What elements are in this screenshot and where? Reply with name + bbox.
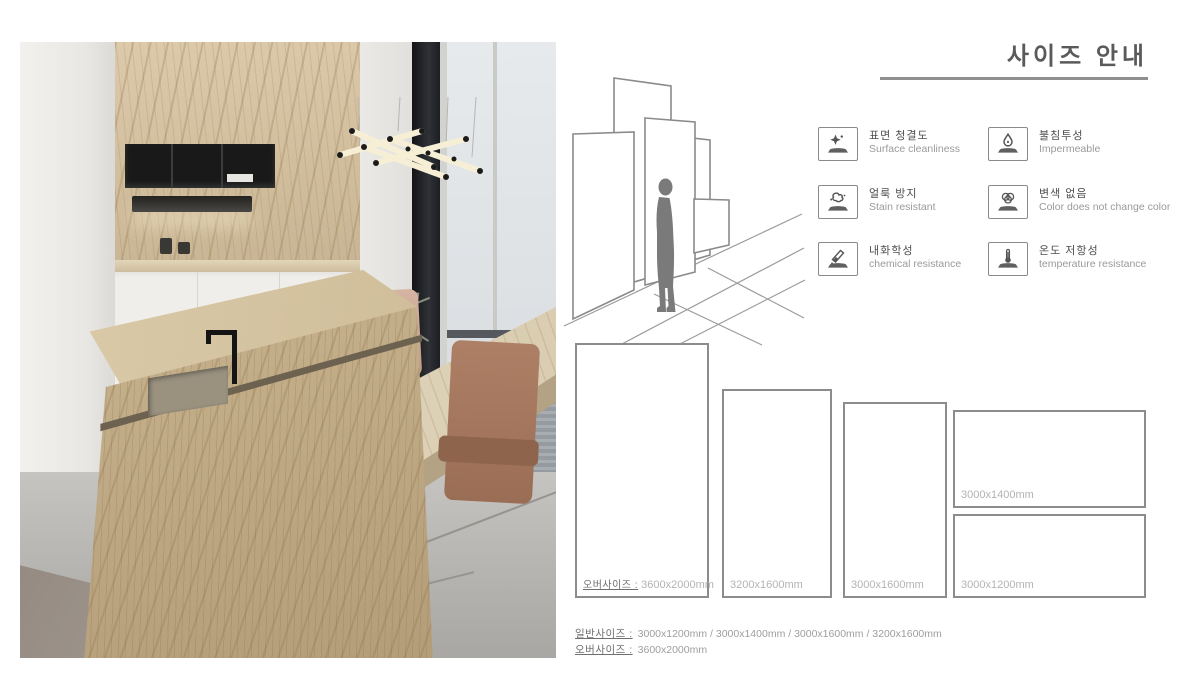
stain-splash-icon xyxy=(818,185,858,219)
slab-size-label: 오버사이즈 : 3600x2000mm xyxy=(583,576,714,591)
size-summary: 일반사이즈 :3000x1200mm / 3000x1400mm / 3000x… xyxy=(575,626,942,658)
feature-en-label: Surface cleanliness xyxy=(869,143,960,156)
feature-temperature-resistance: 온도 저항성 temperature resistance xyxy=(988,242,1146,276)
water-drop-icon xyxy=(988,127,1028,161)
feature-chemical-resistance: 내화학성 chemical resistance xyxy=(818,242,961,276)
slab-size-box-3200x1600: 3200x1600mm xyxy=(722,389,832,598)
color-circles-icon xyxy=(988,185,1028,219)
cooker-hood xyxy=(132,196,252,212)
feature-stain-resistant: 얼룩 방지 Stain resistant xyxy=(818,185,936,219)
feature-en-label: chemical resistance xyxy=(869,258,961,271)
chemical-tube-icon xyxy=(818,242,858,276)
feature-kr-label: 온도 저항성 xyxy=(1039,244,1146,258)
title-underline xyxy=(880,77,1148,80)
kitchen-photo xyxy=(20,42,556,658)
slab-scale-illustration xyxy=(558,56,808,346)
dining-chair xyxy=(444,340,540,504)
counter-items xyxy=(160,232,220,254)
summary-standard-sizes: 일반사이즈 :3000x1200mm / 3000x1400mm / 3000x… xyxy=(575,626,942,642)
feature-kr-label: 변색 없음 xyxy=(1039,187,1170,201)
shelf-divider xyxy=(221,144,223,188)
thermometer-icon xyxy=(988,242,1028,276)
black-faucet xyxy=(232,330,237,384)
black-faucet-spout xyxy=(206,330,237,335)
feature-impermeable: 불침투성 Impermeable xyxy=(988,127,1100,161)
summary-oversize: 오버사이즈 :3600x2000mm xyxy=(575,642,942,658)
feature-kr-label: 불침투성 xyxy=(1039,129,1100,143)
slab-size-label: 3200x1600mm xyxy=(730,579,803,591)
slab-size-box-3600x2000: 오버사이즈 : 3600x2000mm xyxy=(575,343,709,598)
feature-en-label: temperature resistance xyxy=(1039,258,1146,271)
marble-countertop xyxy=(115,260,360,272)
feature-en-label: Color does not change color xyxy=(1039,201,1170,214)
shelf-books xyxy=(227,174,253,182)
feature-en-label: Stain resistant xyxy=(869,201,936,214)
feature-no-discoloration: 변색 없음 Color does not change color xyxy=(988,185,1170,219)
feature-kr-label: 내화학성 xyxy=(869,244,961,258)
slab-size-label: 3000x1400mm xyxy=(961,489,1034,501)
slab-size-box-3000x1200: 3000x1200mm xyxy=(953,514,1146,598)
feature-surface-cleanliness: 표면 청결도 Surface cleanliness xyxy=(818,127,960,161)
slab-size-box-3000x1400: 3000x1400mm xyxy=(953,410,1146,508)
slab-size-label: 3000x1600mm xyxy=(851,579,924,591)
feature-en-label: Impermeable xyxy=(1039,143,1100,156)
black-shelf-niche xyxy=(125,144,275,188)
shelf-divider xyxy=(171,144,173,188)
pendant-light xyxy=(330,97,500,217)
sparkle-surface-icon xyxy=(818,127,858,161)
slab-size-box-3000x1600: 3000x1600mm xyxy=(843,402,947,598)
feature-kr-label: 얼룩 방지 xyxy=(869,187,936,201)
slab-size-label: 3000x1200mm xyxy=(961,579,1034,591)
feature-kr-label: 표면 청결도 xyxy=(869,129,960,143)
size-guide-page: 사이즈 안내 xyxy=(0,0,1200,686)
